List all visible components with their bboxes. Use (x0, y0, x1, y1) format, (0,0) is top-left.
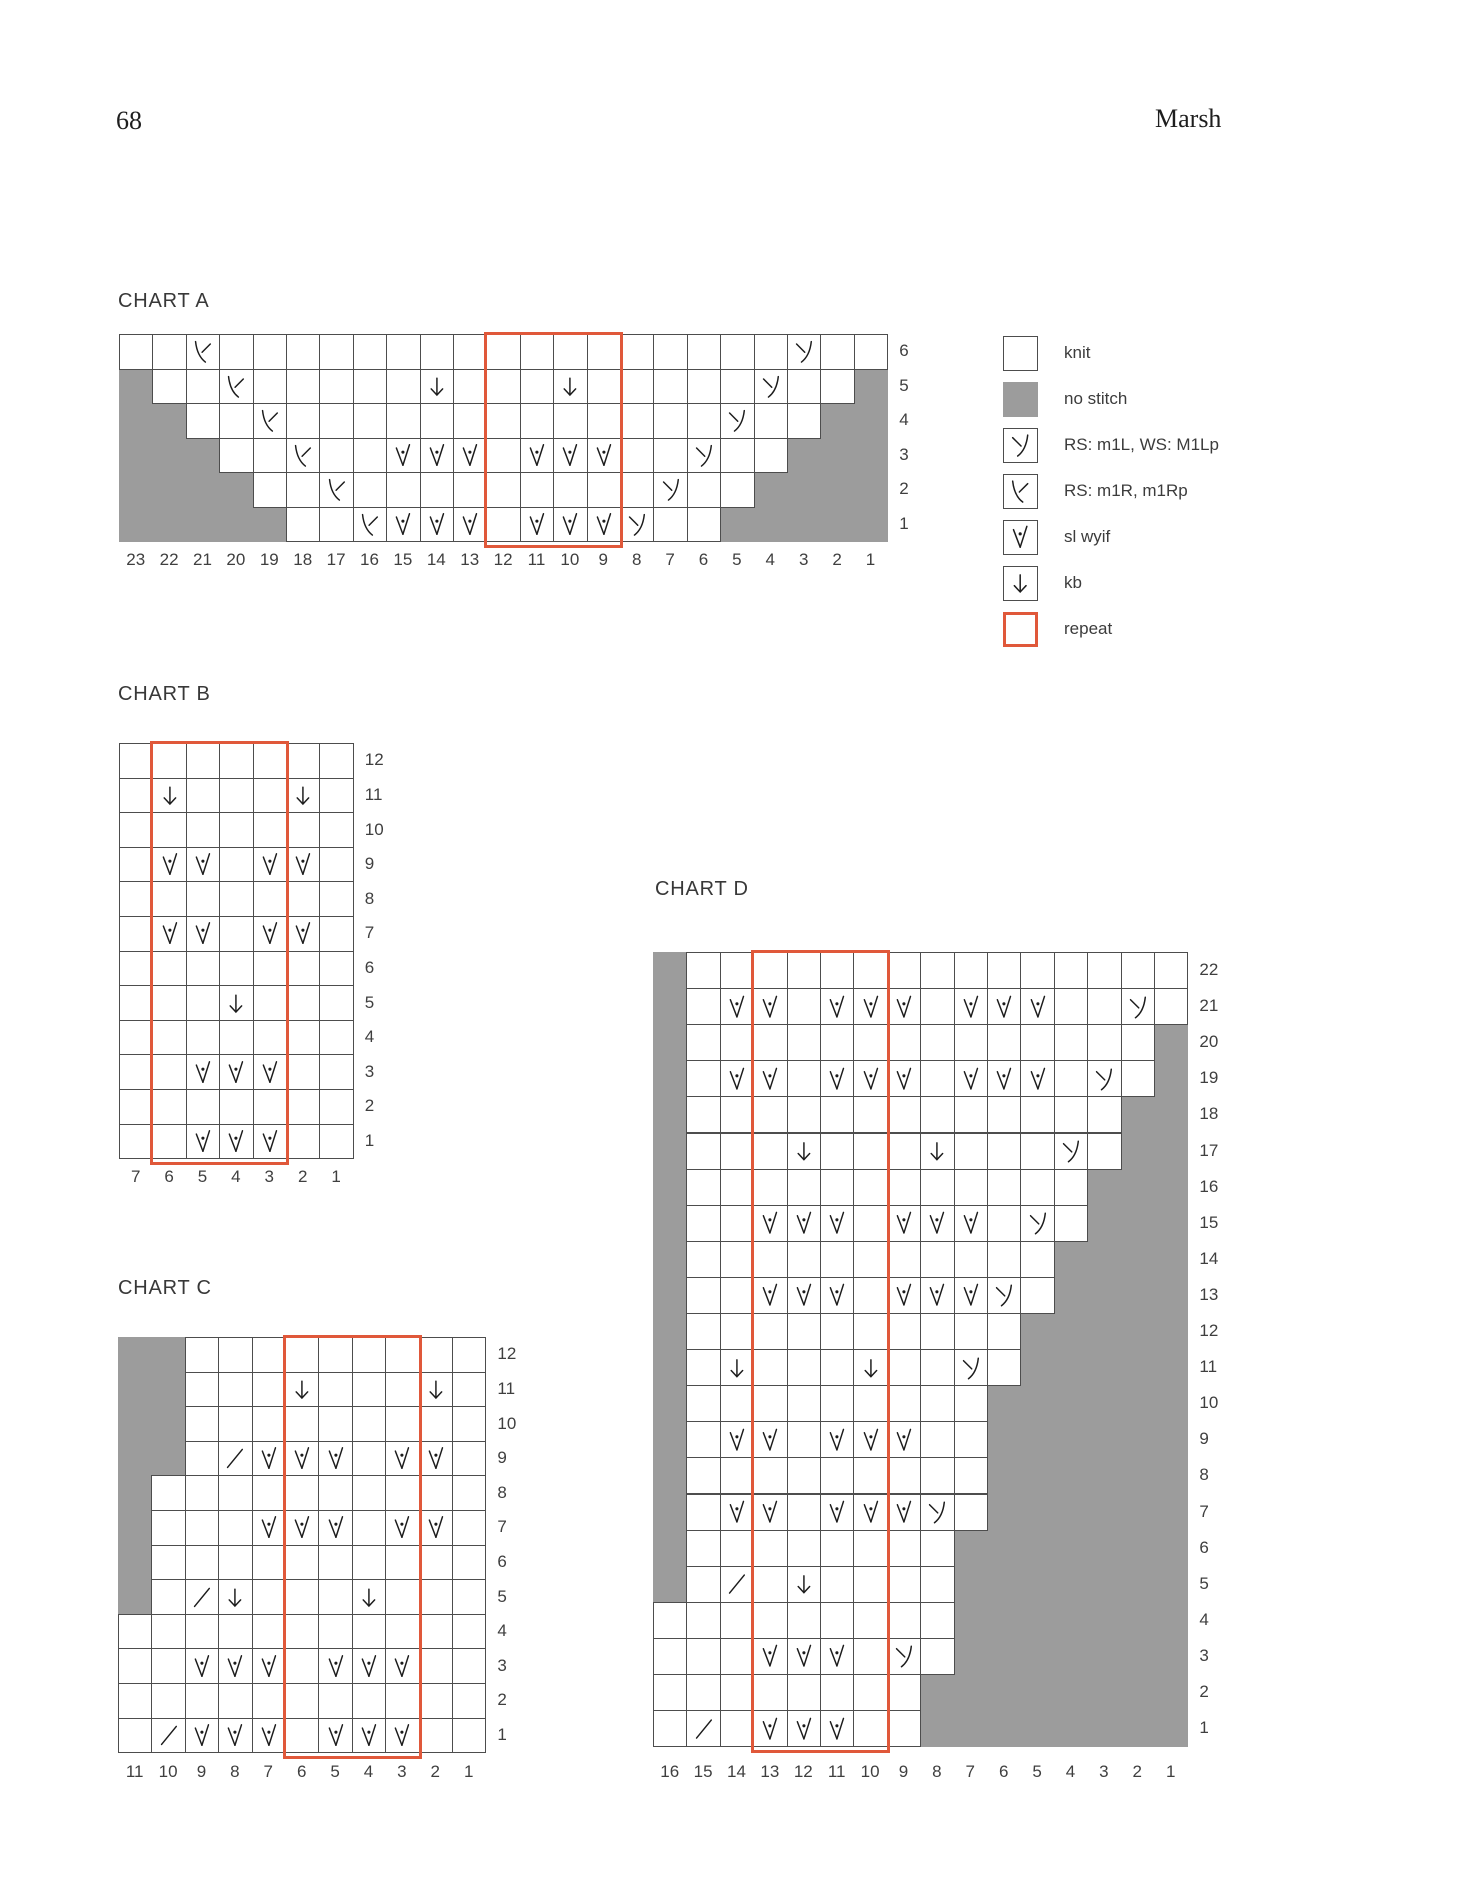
knit-cell (1020, 1241, 1054, 1278)
row-label: 2 (365, 1096, 399, 1116)
knit-cell (353, 438, 387, 474)
knit-cell (453, 472, 487, 508)
no-stitch-icon (1003, 382, 1038, 417)
no-stitch-cell (653, 1205, 687, 1242)
no-stitch-cell (653, 1277, 687, 1314)
knit-cell (1121, 988, 1155, 1025)
repeat-outline (484, 332, 623, 548)
knit-cell (887, 1530, 921, 1567)
knit-cell (419, 1545, 453, 1581)
no-stitch-cell (954, 1638, 988, 1675)
sl-wyif-icon (890, 992, 918, 1022)
knit-cell (987, 1349, 1021, 1386)
knit-cell (686, 1530, 720, 1567)
column-label: 11 (118, 1762, 151, 1782)
knit-cell (286, 472, 320, 508)
m1r-icon (1003, 474, 1038, 509)
knit-cell (286, 334, 320, 370)
m1l-icon (1024, 1208, 1052, 1238)
knit-cell (920, 1530, 954, 1567)
column-label: 2 (419, 1762, 452, 1782)
knit-cell (353, 472, 387, 508)
legend-label: RS: m1R, m1Rp (1064, 481, 1188, 501)
knit-cell (1020, 1277, 1054, 1314)
row-label: 7 (365, 923, 399, 943)
knit-cell (954, 1349, 988, 1386)
knit-cell (119, 985, 153, 1021)
knit-cell (186, 369, 220, 405)
knit-cell (686, 1313, 720, 1350)
k2tog-icon (155, 1721, 183, 1750)
no-stitch-cell (920, 1674, 954, 1711)
knit-cell (686, 1638, 720, 1675)
no-stitch-cell (1087, 1349, 1121, 1386)
knit-cell (854, 334, 888, 370)
no-stitch-cell (1020, 1349, 1054, 1386)
no-stitch-cell (820, 472, 854, 508)
legend-item-m1r: RS: m1R, m1Rp (1003, 473, 1188, 509)
knit-cell (420, 438, 454, 474)
row-label: 2 (1199, 1682, 1233, 1702)
knit-cell (1020, 1096, 1054, 1133)
column-label: 2 (820, 550, 853, 570)
no-stitch-cell (987, 1638, 1021, 1675)
knit-cell (920, 1024, 954, 1061)
knit-cell (253, 472, 287, 508)
knit-cell (1020, 988, 1054, 1025)
repeat-icon (1003, 612, 1038, 647)
knit-cell (185, 1718, 219, 1754)
knit-cell (620, 472, 654, 508)
no-stitch-cell (186, 438, 220, 474)
row-label: 1 (899, 514, 933, 534)
knit-cell (754, 438, 788, 474)
knit-cell (686, 1385, 720, 1422)
chart-c-title: CHART C (118, 1277, 212, 1300)
knit-cell (720, 952, 754, 989)
m1r-icon (289, 441, 317, 470)
no-stitch-cell (854, 472, 888, 508)
knit-cell (185, 1545, 219, 1581)
knit-cell (720, 403, 754, 439)
knit-cell (686, 1349, 720, 1386)
no-stitch-cell (653, 1421, 687, 1458)
knit-cell (954, 1421, 988, 1458)
k2tog-icon (221, 1444, 249, 1473)
no-stitch-cell (1087, 1313, 1121, 1350)
sl-wyif-icon (890, 1208, 918, 1238)
knit-cell (720, 472, 754, 508)
no-stitch-cell (653, 1096, 687, 1133)
sl-wyif-icon (255, 1444, 283, 1473)
m1r-icon (323, 475, 351, 504)
column-label: 5 (1020, 1762, 1053, 1782)
kb-icon (422, 1375, 450, 1404)
no-stitch-cell (118, 1579, 152, 1615)
knit-cell (887, 1060, 921, 1097)
m1l-icon (890, 1641, 918, 1671)
sl-wyif-icon (957, 1208, 985, 1238)
knit-cell (319, 916, 353, 952)
knit-cell (286, 1124, 320, 1160)
knit-cell (887, 1133, 921, 1170)
knit-cell (720, 1313, 754, 1350)
row-label: 9 (1199, 1429, 1233, 1449)
no-stitch-cell (787, 438, 821, 474)
knit-cell (219, 334, 253, 370)
no-stitch-cell (987, 1530, 1021, 1567)
no-stitch-cell (653, 1349, 687, 1386)
no-stitch-cell (653, 1241, 687, 1278)
knit-cell (218, 1441, 252, 1477)
no-stitch-cell (1154, 1638, 1188, 1675)
column-label: 4 (219, 1167, 252, 1187)
column-label: 17 (319, 550, 352, 570)
knit-cell (219, 369, 253, 405)
knit-cell (419, 1614, 453, 1650)
knit-cell (1054, 1060, 1088, 1097)
knit-cell (218, 1579, 252, 1615)
sl-wyif-icon (255, 1513, 283, 1542)
knit-cell (252, 1510, 286, 1546)
knit-cell (954, 1060, 988, 1097)
knit-cell (787, 334, 821, 370)
sl-wyif-icon (923, 1280, 951, 1310)
no-stitch-cell (1154, 1205, 1188, 1242)
knit-cell (185, 1579, 219, 1615)
row-label: 18 (1199, 1104, 1233, 1124)
knit-cell (920, 1169, 954, 1206)
sl-wyif-icon (456, 441, 484, 470)
no-stitch-cell (954, 1674, 988, 1711)
knit-cell (419, 1718, 453, 1754)
no-stitch-cell (854, 438, 888, 474)
column-label: 8 (218, 1762, 251, 1782)
knit-cell (1020, 1133, 1054, 1170)
knit-icon (1003, 336, 1038, 371)
knit-cell (720, 1060, 754, 1097)
column-label: 3 (787, 550, 820, 570)
knit-cell (286, 881, 320, 917)
row-label: 16 (1199, 1177, 1233, 1197)
kb-icon (221, 1583, 249, 1612)
legend-label: sl wyif (1064, 527, 1110, 547)
m1l-icon (923, 1497, 951, 1527)
knit-cell (653, 472, 687, 508)
knit-cell (987, 1133, 1021, 1170)
row-label: 13 (1199, 1285, 1233, 1305)
legend-item-knit: knit (1003, 335, 1090, 371)
knit-cell (887, 988, 921, 1025)
no-stitch-cell (1087, 1530, 1121, 1567)
knit-cell (920, 1241, 954, 1278)
knit-cell (1054, 1024, 1088, 1061)
knit-cell (386, 438, 420, 474)
knit-cell (452, 1406, 486, 1442)
running-head: Marsh (1155, 104, 1265, 134)
row-label: 12 (365, 750, 399, 770)
sl-wyif-icon (1024, 992, 1052, 1022)
no-stitch-cell (118, 1475, 152, 1511)
knit-cell (152, 369, 186, 405)
knit-cell (218, 1510, 252, 1546)
knit-cell (686, 1421, 720, 1458)
knit-cell (252, 1337, 286, 1373)
no-stitch-cell (1121, 1674, 1155, 1711)
no-stitch-cell (1087, 1674, 1121, 1711)
knit-cell (787, 369, 821, 405)
knit-cell (452, 1510, 486, 1546)
knit-cell (286, 951, 320, 987)
sl-wyif-icon (957, 1280, 985, 1310)
knit-cell (420, 403, 454, 439)
chart-b-title: CHART B (118, 683, 211, 706)
row-label: 5 (899, 376, 933, 396)
knit-cell (419, 1475, 453, 1511)
knit-cell (987, 988, 1021, 1025)
column-label: 4 (352, 1762, 385, 1782)
legend-item-sl-wyif: sl wyif (1003, 519, 1110, 555)
knit-cell (720, 1205, 754, 1242)
column-label: 11 (820, 1762, 853, 1782)
no-stitch-cell (987, 1494, 1021, 1531)
row-label: 4 (497, 1621, 531, 1641)
knit-cell (452, 1441, 486, 1477)
no-stitch-cell (1154, 1421, 1188, 1458)
knit-cell (452, 1372, 486, 1408)
column-label: 16 (653, 1762, 686, 1782)
column-label: 10 (553, 550, 586, 570)
no-stitch-cell (1154, 1385, 1188, 1422)
knit-cell (987, 1060, 1021, 1097)
no-stitch-cell (1020, 1457, 1054, 1494)
no-stitch-cell (1054, 1349, 1088, 1386)
sl-wyif-icon (389, 510, 417, 539)
knit-cell (319, 847, 353, 883)
knit-cell (686, 1566, 720, 1603)
sl-wyif-icon (1024, 1064, 1052, 1094)
knit-cell (119, 951, 153, 987)
row-label: 3 (497, 1656, 531, 1676)
knit-cell (720, 334, 754, 370)
knit-cell (386, 507, 420, 543)
row-label: 8 (497, 1483, 531, 1503)
no-stitch-cell (954, 1602, 988, 1639)
column-label: 18 (286, 550, 319, 570)
column-label: 1 (854, 550, 887, 570)
no-stitch-cell (653, 1060, 687, 1097)
no-stitch-cell (854, 507, 888, 543)
row-label: 3 (365, 1062, 399, 1082)
row-label: 7 (497, 1517, 531, 1537)
column-label: 4 (1054, 1762, 1087, 1782)
column-label: 12 (787, 1762, 820, 1782)
row-label: 2 (899, 479, 933, 499)
knit-cell (386, 369, 420, 405)
no-stitch-cell (1121, 1566, 1155, 1603)
no-stitch-cell (1087, 1277, 1121, 1314)
knit-cell (319, 951, 353, 987)
column-label: 12 (486, 550, 519, 570)
no-stitch-cell (653, 1457, 687, 1494)
knit-cell (353, 334, 387, 370)
knit-cell (954, 988, 988, 1025)
knit-cell (419, 1337, 453, 1373)
no-stitch-cell (1121, 1457, 1155, 1494)
knit-cell (186, 334, 220, 370)
column-label: 19 (253, 550, 286, 570)
no-stitch-cell (1154, 1349, 1188, 1386)
knit-cell (720, 1096, 754, 1133)
knit-cell (118, 1718, 152, 1754)
no-stitch-cell (1054, 1566, 1088, 1603)
knit-cell (319, 1054, 353, 1090)
no-stitch-cell (118, 1372, 152, 1408)
no-stitch-cell (1020, 1385, 1054, 1422)
column-label: 1 (319, 1167, 352, 1187)
row-label: 15 (1199, 1213, 1233, 1233)
knit-cell (118, 1648, 152, 1684)
sl-wyif-icon (723, 1064, 751, 1094)
sl-wyif-icon (423, 510, 451, 539)
column-label: 15 (386, 550, 419, 570)
row-label: 10 (497, 1414, 531, 1434)
knit-cell (420, 507, 454, 543)
no-stitch-cell (754, 507, 788, 543)
knit-cell (1020, 1169, 1054, 1206)
knit-cell (653, 1638, 687, 1675)
no-stitch-cell (1121, 1277, 1155, 1314)
knit-cell (452, 1683, 486, 1719)
sl-wyif-icon (923, 1208, 951, 1238)
knit-cell (686, 1710, 720, 1747)
no-stitch-cell (720, 507, 754, 543)
knit-cell (887, 1241, 921, 1278)
knit-cell (920, 1205, 954, 1242)
m1r-icon (222, 372, 250, 401)
knit-cell (419, 1683, 453, 1719)
no-stitch-cell (1154, 1313, 1188, 1350)
knit-cell (653, 334, 687, 370)
no-stitch-cell (854, 403, 888, 439)
sl-wyif-icon (289, 850, 317, 879)
knit-cell (987, 1277, 1021, 1314)
row-label: 6 (899, 341, 933, 361)
row-label: 6 (497, 1552, 531, 1572)
knit-cell (386, 403, 420, 439)
knit-cell (286, 1089, 320, 1125)
no-stitch-cell (118, 1337, 152, 1373)
knit-cell (151, 1579, 185, 1615)
knit-cell (453, 438, 487, 474)
m1r-icon (356, 510, 384, 539)
row-label: 7 (1199, 1502, 1233, 1522)
knit-cell (252, 1406, 286, 1442)
sl-wyif-icon (890, 1425, 918, 1455)
knit-cell (686, 1205, 720, 1242)
no-stitch-cell (1020, 1602, 1054, 1639)
row-label: 8 (1199, 1465, 1233, 1485)
row-label: 10 (1199, 1393, 1233, 1413)
column-label: 7 (653, 550, 686, 570)
column-label: 8 (920, 1762, 953, 1782)
knit-cell (987, 1241, 1021, 1278)
knit-cell (620, 438, 654, 474)
knit-cell (286, 743, 320, 779)
no-stitch-cell (987, 1566, 1021, 1603)
knit-cell (353, 403, 387, 439)
sl-wyif-icon (890, 1064, 918, 1094)
knit-cell (1154, 952, 1188, 989)
no-stitch-cell (787, 507, 821, 543)
knit-cell (720, 1674, 754, 1711)
no-stitch-cell (151, 1372, 185, 1408)
no-stitch-cell (1087, 1566, 1121, 1603)
column-label: 13 (753, 1762, 786, 1782)
no-stitch-cell (1121, 1421, 1155, 1458)
knit-cell (920, 1566, 954, 1603)
knit-cell (920, 1096, 954, 1133)
m1l-icon (657, 475, 685, 504)
kb-icon (723, 1353, 751, 1383)
row-label: 5 (365, 993, 399, 1013)
knit-cell (119, 743, 153, 779)
no-stitch-cell (1054, 1530, 1088, 1567)
knit-cell (686, 1133, 720, 1170)
m1l-icon (723, 406, 751, 435)
knit-cell (1054, 988, 1088, 1025)
knit-cell (720, 1494, 754, 1531)
k2tog-icon (690, 1714, 718, 1744)
row-label: 5 (1199, 1574, 1233, 1594)
sl-wyif-icon (422, 1444, 450, 1473)
repeat-outline (751, 950, 890, 1753)
knit-cell (720, 1133, 754, 1170)
knit-cell (653, 1674, 687, 1711)
knit-cell (1121, 1024, 1155, 1061)
knit-cell (319, 778, 353, 814)
knit-cell (119, 881, 153, 917)
no-stitch-cell (820, 507, 854, 543)
row-label: 9 (365, 854, 399, 874)
row-label: 3 (1199, 1646, 1233, 1666)
legend-label: repeat (1064, 619, 1112, 639)
m1l-icon (690, 441, 718, 470)
knit-cell (1087, 988, 1121, 1025)
knit-cell (185, 1648, 219, 1684)
no-stitch-cell (152, 472, 186, 508)
no-stitch-cell (1154, 1674, 1188, 1711)
row-label: 14 (1199, 1249, 1233, 1269)
knit-cell (218, 1718, 252, 1754)
knit-cell (887, 1169, 921, 1206)
knit-cell (687, 507, 721, 543)
column-label: 5 (186, 1167, 219, 1187)
knit-cell (119, 1124, 153, 1160)
no-stitch-cell (1154, 1457, 1188, 1494)
knit-cell (686, 1277, 720, 1314)
no-stitch-cell (653, 988, 687, 1025)
knit-cell (686, 1494, 720, 1531)
k2tog-icon (723, 1569, 751, 1599)
sl-wyif-icon (890, 1497, 918, 1527)
no-stitch-cell (1154, 1241, 1188, 1278)
knit-cell (119, 812, 153, 848)
no-stitch-cell (820, 403, 854, 439)
no-stitch-cell (1020, 1710, 1054, 1747)
knit-cell (252, 1718, 286, 1754)
no-stitch-cell (653, 1566, 687, 1603)
